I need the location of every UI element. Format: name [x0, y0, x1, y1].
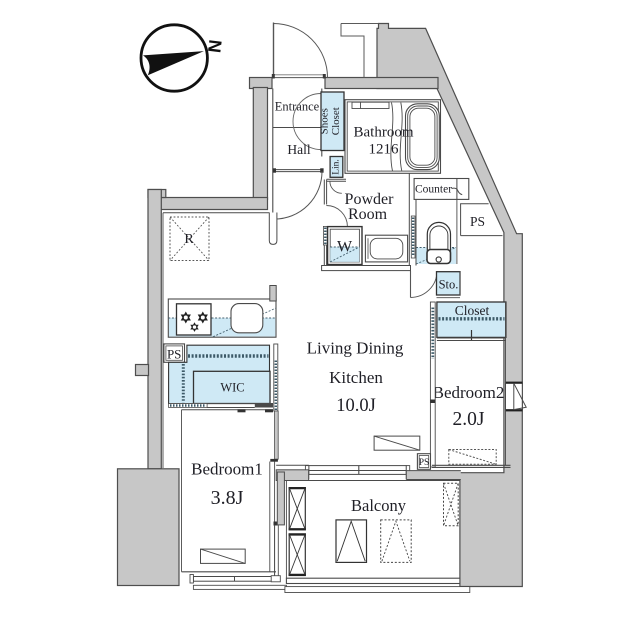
svg-text:R: R [184, 232, 194, 247]
svg-text:Closet: Closet [455, 303, 490, 318]
svg-text:Bedroom1: Bedroom1 [191, 460, 263, 479]
svg-text:Bedroom2: Bedroom2 [433, 383, 505, 402]
svg-text:Sto.: Sto. [439, 278, 459, 292]
svg-text:Lin.: Lin. [332, 159, 342, 175]
svg-text:W: W [337, 239, 353, 256]
svg-text:Balcony: Balcony [351, 496, 407, 515]
svg-text:Hall: Hall [287, 142, 310, 157]
svg-text:PS: PS [167, 347, 181, 362]
svg-text:2.0J: 2.0J [453, 409, 485, 430]
svg-text:Room: Room [348, 206, 388, 223]
svg-text:Living Dining: Living Dining [307, 339, 404, 358]
svg-text:3.8J: 3.8J [211, 487, 244, 509]
svg-text:1216: 1216 [369, 142, 400, 158]
svg-text:N: N [204, 39, 225, 54]
svg-text:Closet: Closet [330, 107, 342, 135]
svg-text:PS: PS [470, 214, 485, 229]
svg-text:Bathroom: Bathroom [354, 125, 414, 141]
svg-text:PS: PS [419, 458, 430, 468]
svg-text:Counter: Counter [415, 184, 452, 196]
svg-text:WIC: WIC [220, 381, 244, 395]
svg-text:Shoes: Shoes [319, 108, 331, 134]
svg-text:10.0J: 10.0J [336, 396, 376, 416]
svg-text:Kitchen: Kitchen [329, 368, 383, 387]
